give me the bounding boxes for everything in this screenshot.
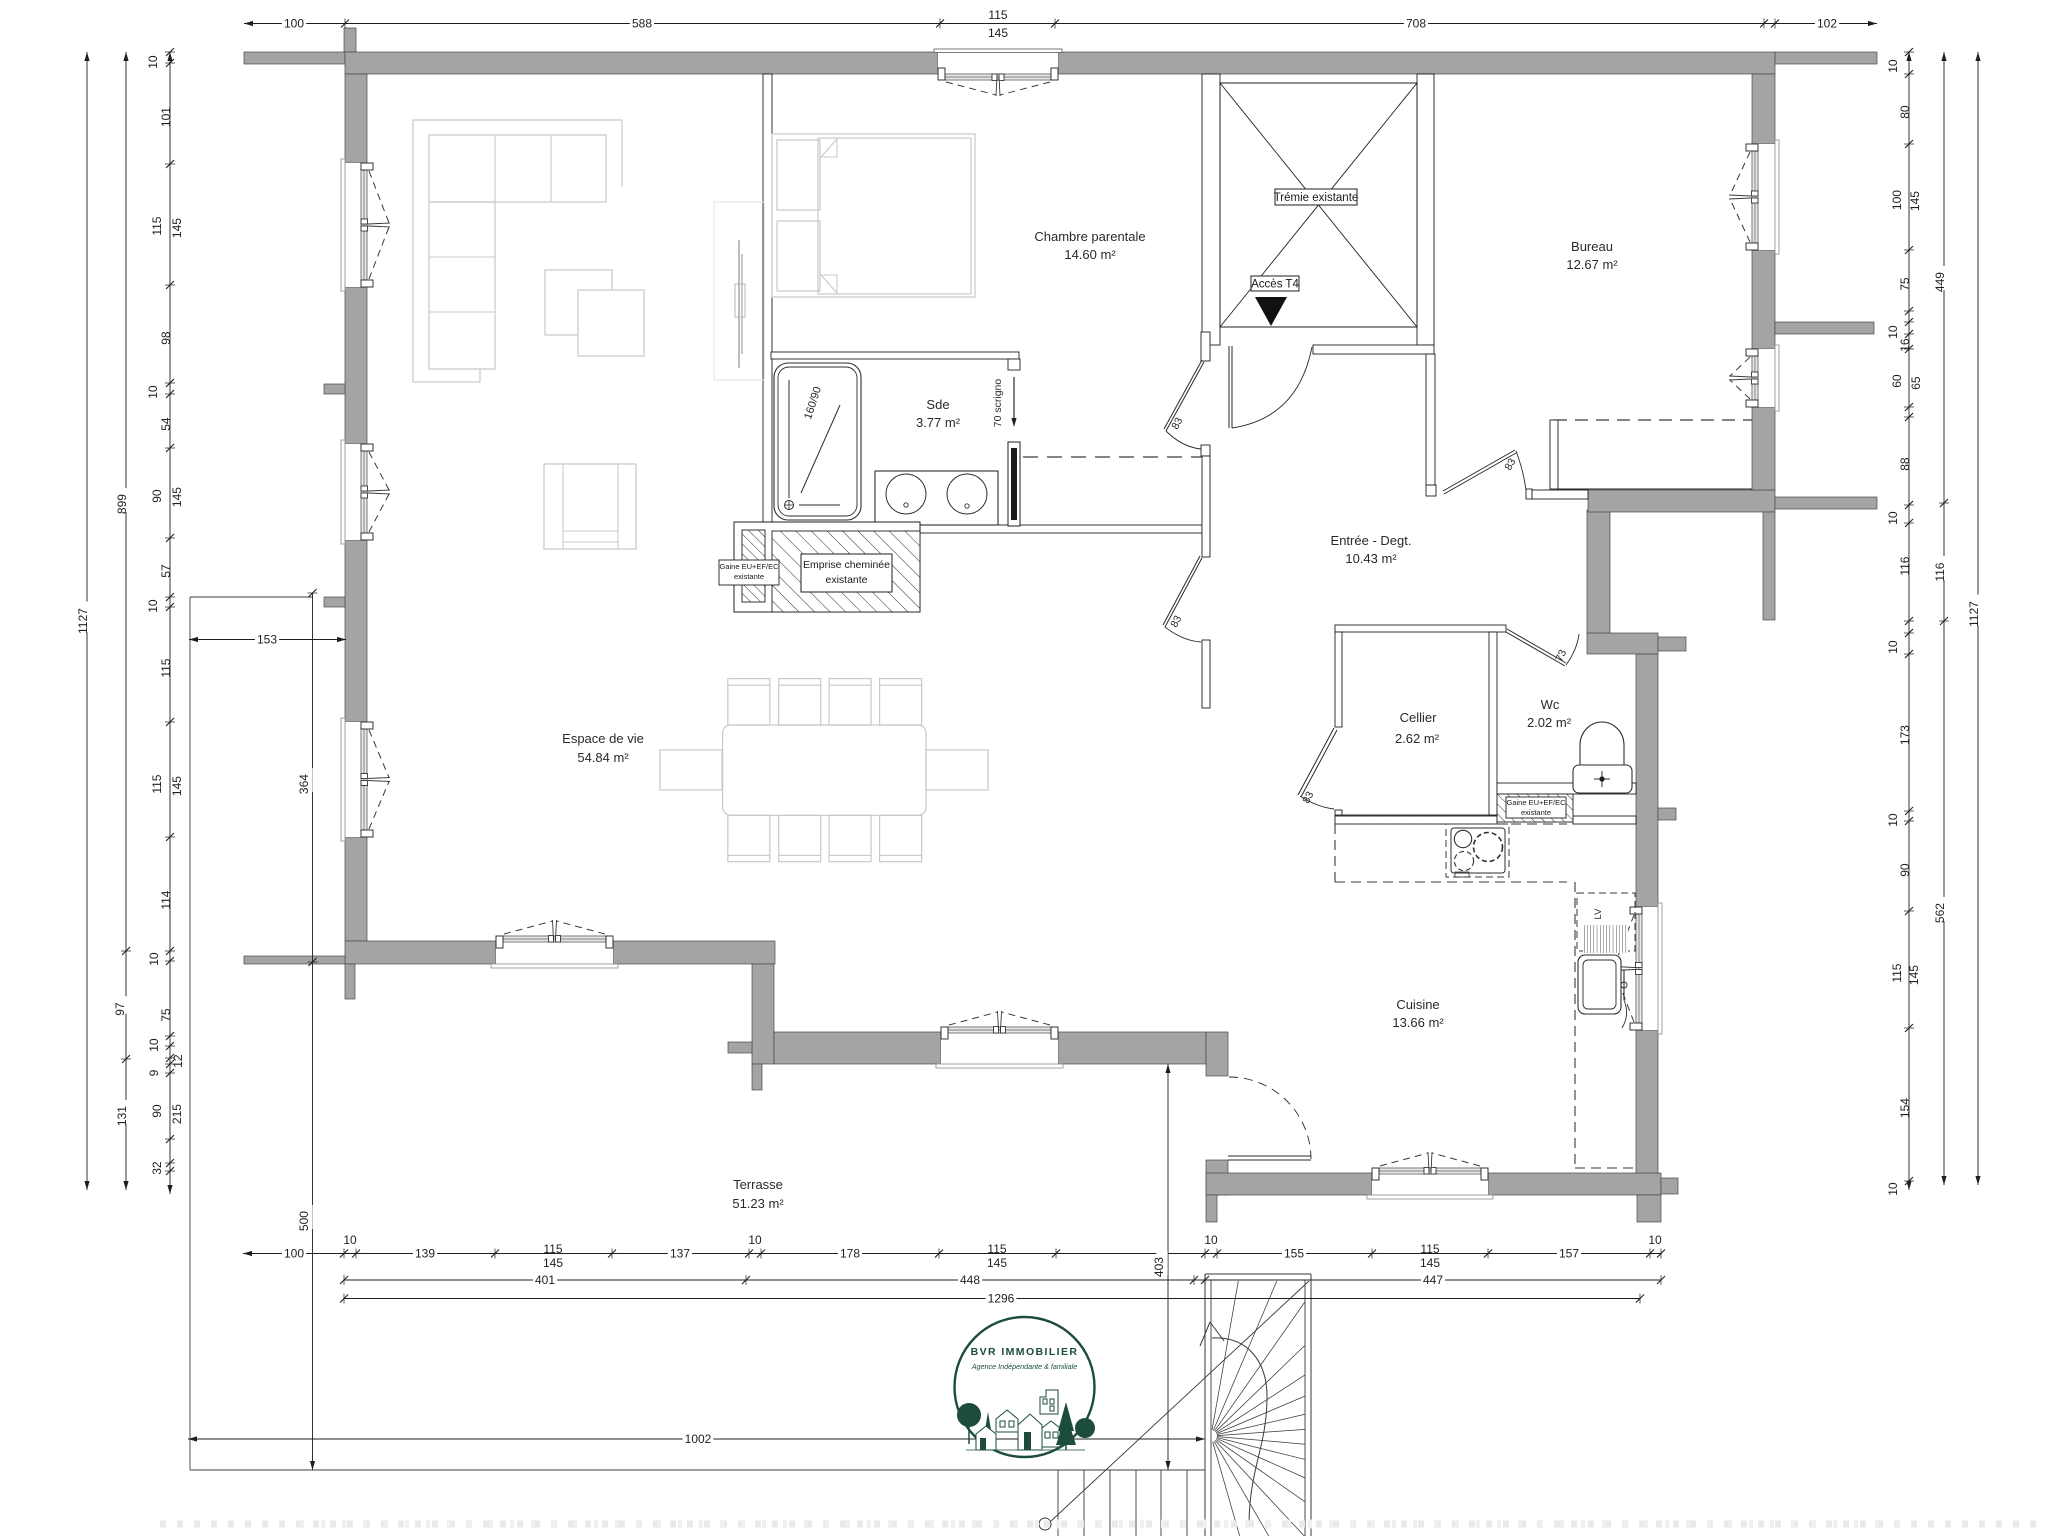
svg-text:10: 10 [146, 599, 160, 613]
svg-text:10: 10 [1886, 813, 1900, 827]
svg-text:BVR IMMOBILIER: BVR IMMOBILIER [971, 1346, 1079, 1358]
svg-text:Sde: Sde [926, 397, 949, 412]
svg-text:401: 401 [535, 1273, 555, 1287]
svg-text:115: 115 [150, 216, 164, 235]
svg-text:Terrasse: Terrasse [733, 1177, 783, 1192]
svg-text:Gaine EU+EF/EC: Gaine EU+EF/EC [1507, 798, 1567, 807]
svg-text:16: 16 [1898, 338, 1912, 352]
svg-text:10: 10 [1886, 325, 1900, 339]
svg-text:153: 153 [257, 633, 277, 647]
svg-text:10: 10 [748, 1233, 762, 1247]
svg-text:10: 10 [1886, 1182, 1900, 1196]
svg-text:101: 101 [159, 107, 173, 127]
svg-text:145: 145 [1420, 1256, 1440, 1270]
svg-text:500: 500 [297, 1211, 311, 1231]
svg-text:215: 215 [170, 1104, 184, 1124]
svg-text:145: 145 [170, 776, 184, 796]
svg-text:90: 90 [150, 489, 164, 503]
svg-text:90: 90 [1898, 863, 1912, 877]
svg-text:588: 588 [632, 17, 652, 31]
svg-text:178: 178 [840, 1247, 860, 1261]
svg-text:1127: 1127 [76, 608, 90, 634]
svg-text:1127: 1127 [1967, 601, 1981, 627]
svg-text:173: 173 [1898, 725, 1912, 745]
svg-text:116: 116 [1898, 556, 1912, 575]
svg-text:2.62 m²: 2.62 m² [1395, 731, 1440, 746]
svg-text:existante: existante [825, 574, 867, 586]
svg-text:116: 116 [1933, 562, 1947, 581]
svg-text:10: 10 [146, 55, 160, 69]
svg-text:Chambre parentale: Chambre parentale [1034, 229, 1145, 244]
svg-text:Trémie existante: Trémie existante [1274, 192, 1359, 204]
svg-text:Wc: Wc [1541, 697, 1560, 712]
svg-text:131: 131 [115, 1106, 129, 1126]
svg-text:75: 75 [159, 1008, 173, 1022]
svg-text:137: 137 [670, 1247, 690, 1261]
svg-text:51.23 m²: 51.23 m² [732, 1196, 784, 1211]
svg-text:Bureau: Bureau [1571, 239, 1613, 254]
svg-text:Agence Indépendante & familial: Agence Indépendante & familiale [971, 1362, 1078, 1371]
svg-text:100: 100 [284, 1247, 304, 1261]
svg-text:155: 155 [1284, 1247, 1304, 1261]
svg-text:10: 10 [1886, 59, 1900, 73]
svg-text:364: 364 [297, 774, 311, 794]
svg-text:existante: existante [734, 572, 764, 581]
svg-text:562: 562 [1933, 903, 1947, 923]
svg-text:13.66 m²: 13.66 m² [1392, 1015, 1444, 1030]
svg-text:65: 65 [1909, 376, 1923, 390]
svg-text:115: 115 [543, 1242, 562, 1256]
svg-text:100: 100 [284, 17, 304, 31]
svg-text:existante: existante [1521, 808, 1551, 817]
svg-text:Accès T4: Accès T4 [1251, 279, 1299, 291]
svg-text:115: 115 [150, 774, 164, 793]
svg-text:Espace de vie: Espace de vie [562, 731, 644, 746]
svg-text:145: 145 [170, 487, 184, 507]
svg-text:154: 154 [1898, 1098, 1912, 1118]
svg-text:Emprise cheminée: Emprise cheminée [803, 559, 890, 571]
svg-text:9: 9 [147, 1069, 161, 1076]
svg-text:10: 10 [1886, 511, 1900, 525]
svg-text:115: 115 [987, 1242, 1006, 1256]
svg-text:139: 139 [415, 1247, 435, 1261]
svg-text:708: 708 [1406, 17, 1426, 31]
svg-text:145: 145 [1907, 965, 1921, 985]
svg-text:115: 115 [1890, 963, 1904, 982]
svg-text:10: 10 [343, 1233, 357, 1247]
svg-text:145: 145 [1908, 191, 1922, 211]
svg-text:54: 54 [159, 417, 173, 431]
svg-text:115: 115 [1420, 1242, 1439, 1256]
svg-text:1002: 1002 [685, 1432, 712, 1446]
svg-text:98: 98 [159, 331, 173, 345]
svg-text:448: 448 [960, 1273, 980, 1287]
svg-text:447: 447 [1423, 1273, 1443, 1287]
svg-text:145: 145 [988, 26, 1008, 40]
svg-text:12.67 m²: 12.67 m² [1566, 257, 1618, 272]
svg-text:145: 145 [543, 1256, 563, 1270]
svg-text:Cuisine: Cuisine [1396, 997, 1439, 1012]
svg-text:102: 102 [1817, 17, 1837, 31]
svg-text:54.84 m²: 54.84 m² [577, 750, 629, 765]
svg-text:Gaine EU+EF/EC: Gaine EU+EF/EC [720, 562, 780, 571]
svg-text:80: 80 [1898, 105, 1912, 119]
svg-text:10: 10 [146, 385, 160, 399]
svg-text:Cellier: Cellier [1400, 710, 1438, 725]
svg-text:90: 90 [150, 1104, 164, 1118]
svg-text:10: 10 [147, 952, 161, 966]
svg-text:449: 449 [1933, 272, 1947, 292]
svg-text:145: 145 [987, 1256, 1007, 1270]
svg-text:75: 75 [1898, 277, 1912, 291]
svg-text:3.77 m²: 3.77 m² [916, 415, 961, 430]
svg-text:1296: 1296 [988, 1292, 1015, 1306]
svg-text:14.60 m²: 14.60 m² [1064, 247, 1116, 262]
svg-text:114: 114 [159, 890, 173, 909]
svg-text:Entrée - Degt.: Entrée - Degt. [1331, 533, 1412, 548]
svg-text:10: 10 [1204, 1233, 1218, 1247]
svg-text:157: 157 [1559, 1247, 1579, 1261]
svg-text:12: 12 [171, 1054, 185, 1068]
svg-text:403: 403 [1152, 1257, 1166, 1277]
svg-text:10: 10 [147, 1038, 161, 1052]
svg-text:115: 115 [988, 8, 1007, 22]
svg-text:100: 100 [1890, 190, 1904, 210]
svg-text:32: 32 [150, 1161, 164, 1175]
svg-text:70 scrigno: 70 scrigno [992, 379, 1004, 428]
svg-text:57: 57 [159, 564, 173, 578]
svg-text:97: 97 [113, 1002, 127, 1016]
svg-text:2.02 m²: 2.02 m² [1527, 715, 1572, 730]
svg-text:LV: LV [1593, 908, 1604, 920]
svg-text:10.43 m²: 10.43 m² [1345, 551, 1397, 566]
svg-text:60: 60 [1890, 374, 1904, 388]
svg-text:10: 10 [1648, 1233, 1662, 1247]
svg-text:88: 88 [1898, 457, 1912, 471]
svg-text:10: 10 [1886, 640, 1900, 654]
svg-text:115: 115 [159, 658, 173, 677]
svg-text:145: 145 [170, 218, 184, 238]
svg-text:899: 899 [115, 494, 129, 514]
